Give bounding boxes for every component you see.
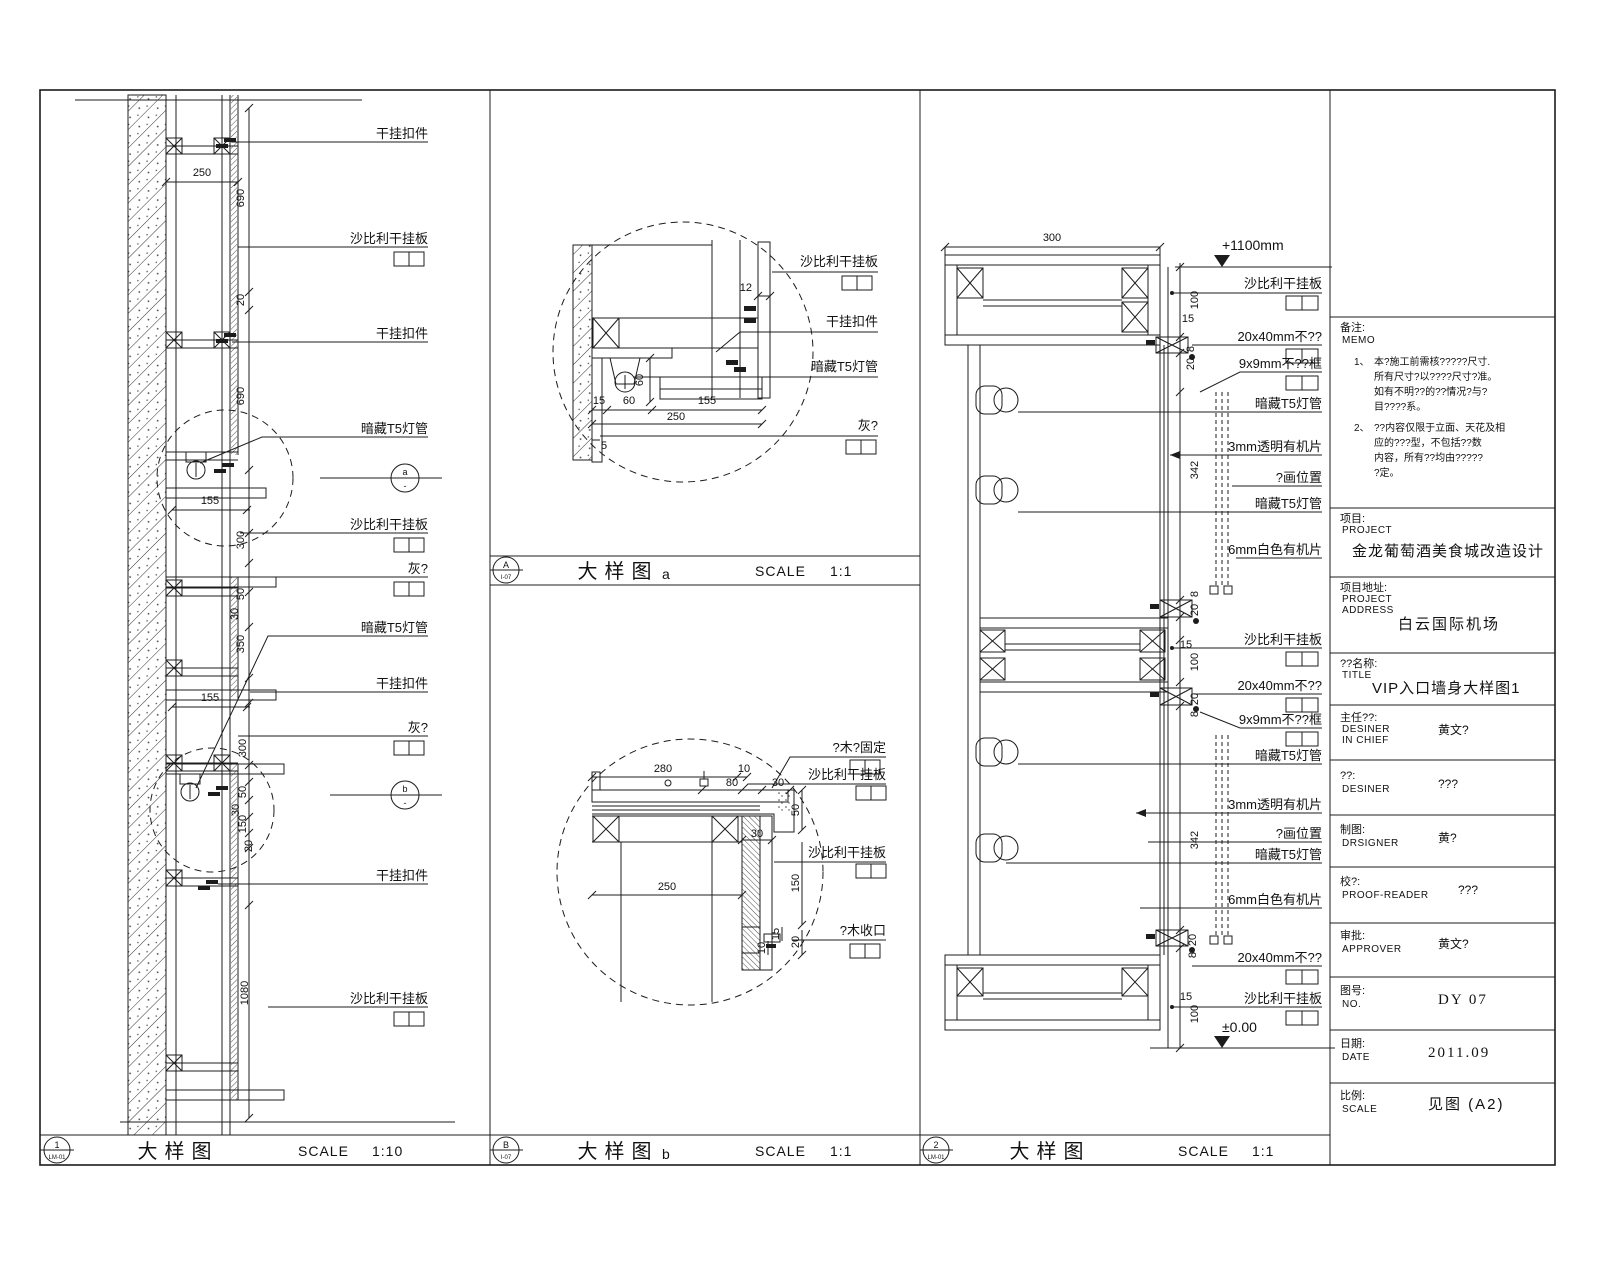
annotation-label: 暗藏T5灯管 [1255, 496, 1322, 511]
dim-value: 20 [790, 936, 802, 948]
footer-bubble-number: 2 [933, 1140, 938, 1150]
memo-item2-line: 内容，所有??均由????? [1374, 452, 1483, 466]
panel-title-suffix: a [662, 566, 670, 582]
annotation-label: 20x40mm不?? [1237, 678, 1322, 693]
drawing-canvas: 干挂扣件 沙比利干挂板 干挂扣件 暗藏T5灯管 沙比利干挂板 灰? 暗藏T5灯管… [0, 0, 1600, 1280]
row-value: ??? [1438, 778, 1458, 792]
scale-label: SCALE [1178, 1143, 1229, 1159]
row-label-en: DESINER [1342, 784, 1390, 796]
dim-value: 155 [201, 495, 219, 507]
dim-value: 100 [1189, 653, 1201, 671]
dim-value: 690 [235, 387, 247, 405]
row-label-en: APPROVER [1342, 944, 1402, 956]
annotation-label: 6mm白色有机片 [1228, 892, 1322, 907]
dim-value: 280 [654, 763, 672, 775]
callout-letter: b [402, 784, 407, 794]
row-label-en: SCALE [1342, 1104, 1377, 1116]
annotation-label: 干挂扣件 [376, 126, 428, 141]
annotation-label: 9x9mm不??框 [1239, 712, 1322, 727]
panel1-annotations: 干挂扣件 沙比利干挂板 干挂扣件 暗藏T5灯管 沙比利干挂板 灰? 暗藏T5灯管… [193, 126, 428, 1006]
dim-value: 8 [1185, 346, 1197, 352]
annotation-label: 沙比利干挂板 [808, 767, 886, 782]
drawing-scale: 见图 (A2) [1428, 1096, 1505, 1113]
memo-item2-line: ??内容仅限于立面、天花及相 [1374, 422, 1505, 436]
drawing-title-label-en: TITLE [1342, 670, 1372, 682]
dim-value: 150 [790, 874, 802, 892]
address-label-en2: ADDRESS [1342, 605, 1394, 617]
memo-item1-line: 目????系。 [1374, 401, 1426, 415]
scale-label: SCALE [298, 1143, 349, 1159]
annotation-label: 干挂扣件 [826, 314, 878, 329]
dim-value: 30 [229, 608, 241, 620]
dim-value: 1080 [239, 981, 251, 1005]
dim-value: 60 [634, 374, 646, 386]
dim-value: 350 [235, 635, 247, 653]
dim-value: 150 [237, 815, 249, 833]
annotation-label: ?画位置 [1276, 470, 1322, 485]
dim-value: 690 [235, 189, 247, 207]
dim-value: 20 [243, 840, 255, 852]
project-label: 项目: [1340, 513, 1365, 526]
project-label-en: PROJECT [1342, 525, 1392, 537]
row-value: 黄文? [1438, 938, 1469, 952]
annotation-label: 沙比利干挂板 [1244, 632, 1322, 647]
dim-value: 10 [756, 942, 768, 954]
level-value: +1100mm [1222, 237, 1284, 253]
footer-bubble-number: 1 [54, 1140, 59, 1150]
level-marker-bottom [1214, 1036, 1230, 1048]
cad-sheet: 干挂扣件 沙比利干挂板 干挂扣件 暗藏T5灯管 沙比利干挂板 灰? 暗藏T5灯管… [0, 0, 1600, 1280]
annotation-label: ?木收口 [840, 923, 886, 938]
memo-item2-line: ?定。 [1374, 467, 1400, 481]
callout-letter: a [402, 467, 407, 477]
row-label-en: PROOF-READER [1342, 890, 1429, 902]
scale-label: SCALE [755, 563, 806, 579]
panel-title: 大样图 [578, 1140, 659, 1163]
annotation-label: 3mm透明有机片 [1228, 439, 1322, 454]
row-label: 日期: [1340, 1038, 1365, 1051]
row-label-en: DRSIGNER [1342, 838, 1399, 850]
annotation-label: 沙比利干挂板 [808, 845, 886, 860]
dim-value: 250 [667, 411, 685, 423]
row-label-en2: IN CHIEF [1342, 735, 1389, 747]
annotation-label: 灰? [408, 720, 428, 735]
panel-title: 大样图 [138, 1140, 219, 1163]
dim-value: 8 [1187, 952, 1199, 958]
memo-item2-no: 2、 [1354, 422, 1370, 436]
annotation-label: 沙比利干挂板 [800, 254, 878, 269]
memo-item1-no: 1、 [1354, 356, 1370, 370]
dim-value: 300 [235, 531, 247, 549]
row-label-en: DATE [1342, 1052, 1370, 1064]
dim-value: 8 [1189, 591, 1201, 597]
sheet-borders [40, 90, 1555, 1165]
address-label-en: PROJECT [1342, 594, 1392, 606]
dim-value: 15 [1180, 639, 1192, 651]
annotation-label: 灰? [858, 418, 878, 433]
dim-value: 30 [772, 777, 784, 789]
panel-title: 大样图 [578, 560, 659, 583]
memo-item1-line: 本?施工前需核?????尺寸. [1374, 356, 1490, 370]
dim-value: 80 [726, 777, 738, 789]
dim-value: 100 [1189, 291, 1201, 309]
memo-item1-line: 所有尺寸?以????尺寸?准。 [1374, 371, 1497, 385]
annotation-label: 沙比利干挂板 [1244, 991, 1322, 1006]
scale-label: SCALE [755, 1143, 806, 1159]
dim-value: 60 [623, 395, 635, 407]
dim-value: 342 [1189, 831, 1201, 849]
dim-value: 250 [658, 881, 676, 893]
address-label: 项目地址: [1340, 582, 1387, 595]
dim-value: 342 [1189, 461, 1201, 479]
row-value: 黄? [1438, 832, 1457, 846]
dim-value: 15 [770, 928, 782, 940]
scale-value: 1:10 [372, 1143, 403, 1159]
annotation-label: ?画位置 [1276, 826, 1322, 841]
memo-item2-line: 应的???型，不包括??数 [1374, 437, 1482, 451]
dim-value: 20 [1187, 934, 1199, 946]
annotation-label: 20x40mm不?? [1237, 329, 1322, 344]
panel-title-suffix: b [662, 1146, 670, 1162]
annotation-label: 20x40mm不?? [1237, 950, 1322, 965]
panel3-annotations: 300 +1100mm ±0.00 沙比利干挂板 20x40mm不?? 9x9m… [1043, 232, 1322, 1035]
panel1-linework [75, 95, 455, 1135]
panel-title: 大样图 [1010, 1140, 1091, 1163]
panel2b-annotations: ?木?固定 沙比利干挂板 沙比利干挂板 ?木收口 280 10 80 30 50… [654, 740, 886, 954]
footer-bubble-number: A [503, 560, 509, 570]
dim-value: 50 [790, 804, 802, 816]
row-label-en: NO. [1342, 999, 1361, 1011]
callout-sheet: - [404, 481, 407, 491]
annotation-label: 灰? [408, 561, 428, 576]
annotation-label: 沙比利干挂板 [1244, 276, 1322, 291]
panel2a-annotations: 沙比利干挂板 干挂扣件 暗藏T5灯管 灰? 12 60 15 60 155 25… [593, 254, 878, 452]
annotation-label: 9x9mm不??框 [1239, 356, 1322, 371]
row-label: 主任??: [1340, 712, 1377, 725]
annotation-label: 暗藏T5灯管 [811, 359, 878, 374]
footer-bubble-number: B [503, 1140, 509, 1150]
dim-value: 15 [593, 395, 605, 407]
annotation-label: 暗藏T5灯管 [361, 421, 428, 436]
dim-value: 20 [1185, 358, 1197, 370]
annotation-label: 6mm白色有机片 [1228, 542, 1322, 557]
material-tag [394, 252, 424, 1026]
dim-value: 5 [601, 440, 607, 452]
dim-value: 50 [237, 786, 249, 798]
detail-a-region-circle [157, 410, 293, 546]
dim-value: 15 [1180, 991, 1192, 1003]
row-value: ??? [1458, 884, 1478, 898]
footer-bubble-ref: LM-01 [927, 1155, 945, 1161]
project-address: 白云国际机场 [1398, 616, 1500, 633]
dim-value: 20 [1189, 693, 1201, 705]
dim-value: 50 [235, 588, 247, 600]
dim-value: 100 [1189, 1005, 1201, 1023]
detail-b-region-circle [150, 748, 274, 872]
annotation-label: 暗藏T5灯管 [1255, 396, 1322, 411]
dim-value: 20 [235, 294, 247, 306]
row-value: 黄文? [1438, 724, 1469, 738]
dim-value: 155 [201, 692, 219, 704]
scale-value: 1:1 [830, 563, 852, 579]
annotation-label: ?木?固定 [833, 740, 886, 755]
annotation-label: 沙比利干挂板 [350, 991, 428, 1006]
memo-label-en: MEMO [1342, 335, 1375, 347]
drawing-date: 2011.09 [1428, 1045, 1490, 1062]
scale-value: 1:1 [830, 1143, 852, 1159]
level-marker-top [1214, 255, 1230, 267]
dim-value: 30 [751, 828, 763, 840]
annotation-label: 暗藏T5灯管 [361, 620, 428, 635]
annotation-label: 干挂扣件 [376, 326, 428, 341]
footer-bubbles [40, 557, 953, 1163]
dim-value: 250 [193, 167, 211, 179]
memo-item1-line: 如有不明??的??情况?与? [1374, 386, 1487, 400]
level-value: ±0.00 [1222, 1019, 1257, 1035]
annotation-label: 沙比利干挂板 [350, 517, 428, 532]
t5-lamp-icon [976, 386, 1018, 862]
row-label: 图号: [1340, 985, 1365, 998]
row-label: ??: [1340, 770, 1355, 783]
annotation-label: 3mm透明有机片 [1228, 797, 1322, 812]
row-label: 校?: [1340, 876, 1360, 889]
dim-value: 15 [1182, 313, 1194, 325]
annotation-label: 干挂扣件 [376, 868, 428, 883]
row-label: 制图: [1340, 824, 1365, 837]
dim-value: 12 [740, 282, 752, 294]
dim-value: 300 [1043, 232, 1061, 244]
annotation-label: 暗藏T5灯管 [1255, 748, 1322, 763]
row-label: 审批: [1340, 930, 1365, 943]
project-name: 金龙葡萄酒美食城改造设计 [1352, 543, 1544, 560]
annotation-label: 沙比利干挂板 [350, 231, 428, 246]
dim-value: 20 [1189, 604, 1201, 616]
drawing-title-label: ??名称: [1340, 658, 1377, 671]
dim-value: 155 [698, 395, 716, 407]
callout-sheet: - [404, 798, 407, 808]
annotation-label: 暗藏T5灯管 [1255, 847, 1322, 862]
scale-value: 1:1 [1252, 1143, 1274, 1159]
dim-value: 8 [1189, 711, 1201, 717]
row-label: 比例: [1340, 1090, 1365, 1103]
drawing-number: DY 07 [1438, 992, 1488, 1009]
dim-value: 10 [738, 763, 750, 775]
row-label-en: DESINER [1342, 724, 1390, 736]
annotation-label: 干挂扣件 [376, 676, 428, 691]
dim-value: 300 [237, 739, 249, 757]
drawing-title: VIP入口墙身大样图1 [1372, 680, 1521, 697]
footer-bubble-ref: LM-01 [48, 1155, 66, 1161]
dim-value: 30 [230, 804, 242, 816]
footer-bubble-ref: I-07 [501, 575, 512, 581]
memo-label: 备注: [1340, 322, 1365, 335]
footer-bubble-ref: I-07 [501, 1155, 512, 1161]
